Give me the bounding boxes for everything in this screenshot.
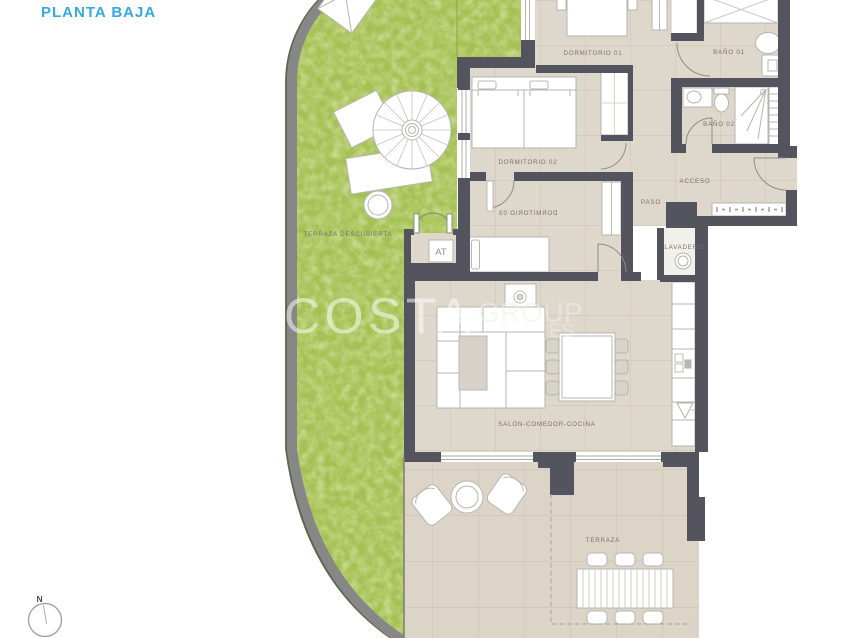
- svg-text:ES: ES: [549, 321, 574, 342]
- svg-text:TERRAZA: TERRAZA: [586, 537, 621, 544]
- svg-text:AT: AT: [435, 247, 447, 258]
- svg-text:N: N: [37, 594, 43, 604]
- svg-text:TERRAZA DESCUBIERTA: TERRAZA DESCUBIERTA: [304, 231, 393, 238]
- svg-text:BAÑO 02: BAÑO 02: [703, 121, 735, 128]
- svg-text:COSTA: COSTA: [284, 288, 475, 344]
- svg-text:PLANTA BAJA: PLANTA BAJA: [41, 4, 156, 21]
- svg-text:DORMITORIO 01: DORMITORIO 01: [563, 50, 622, 57]
- svg-text:DORMITORIO 03: DORMITORIO 03: [498, 210, 557, 217]
- svg-text:PASO: PASO: [641, 199, 661, 206]
- svg-text:SALÓN-COMEDOR-COCINA: SALÓN-COMEDOR-COCINA: [498, 421, 596, 428]
- svg-text:ACCESO: ACCESO: [680, 178, 711, 185]
- svg-text:LAVADERO: LAVADERO: [664, 244, 703, 251]
- svg-text:DORMITORIO 02: DORMITORIO 02: [498, 159, 557, 166]
- svg-text:BAÑO 01: BAÑO 01: [713, 49, 745, 56]
